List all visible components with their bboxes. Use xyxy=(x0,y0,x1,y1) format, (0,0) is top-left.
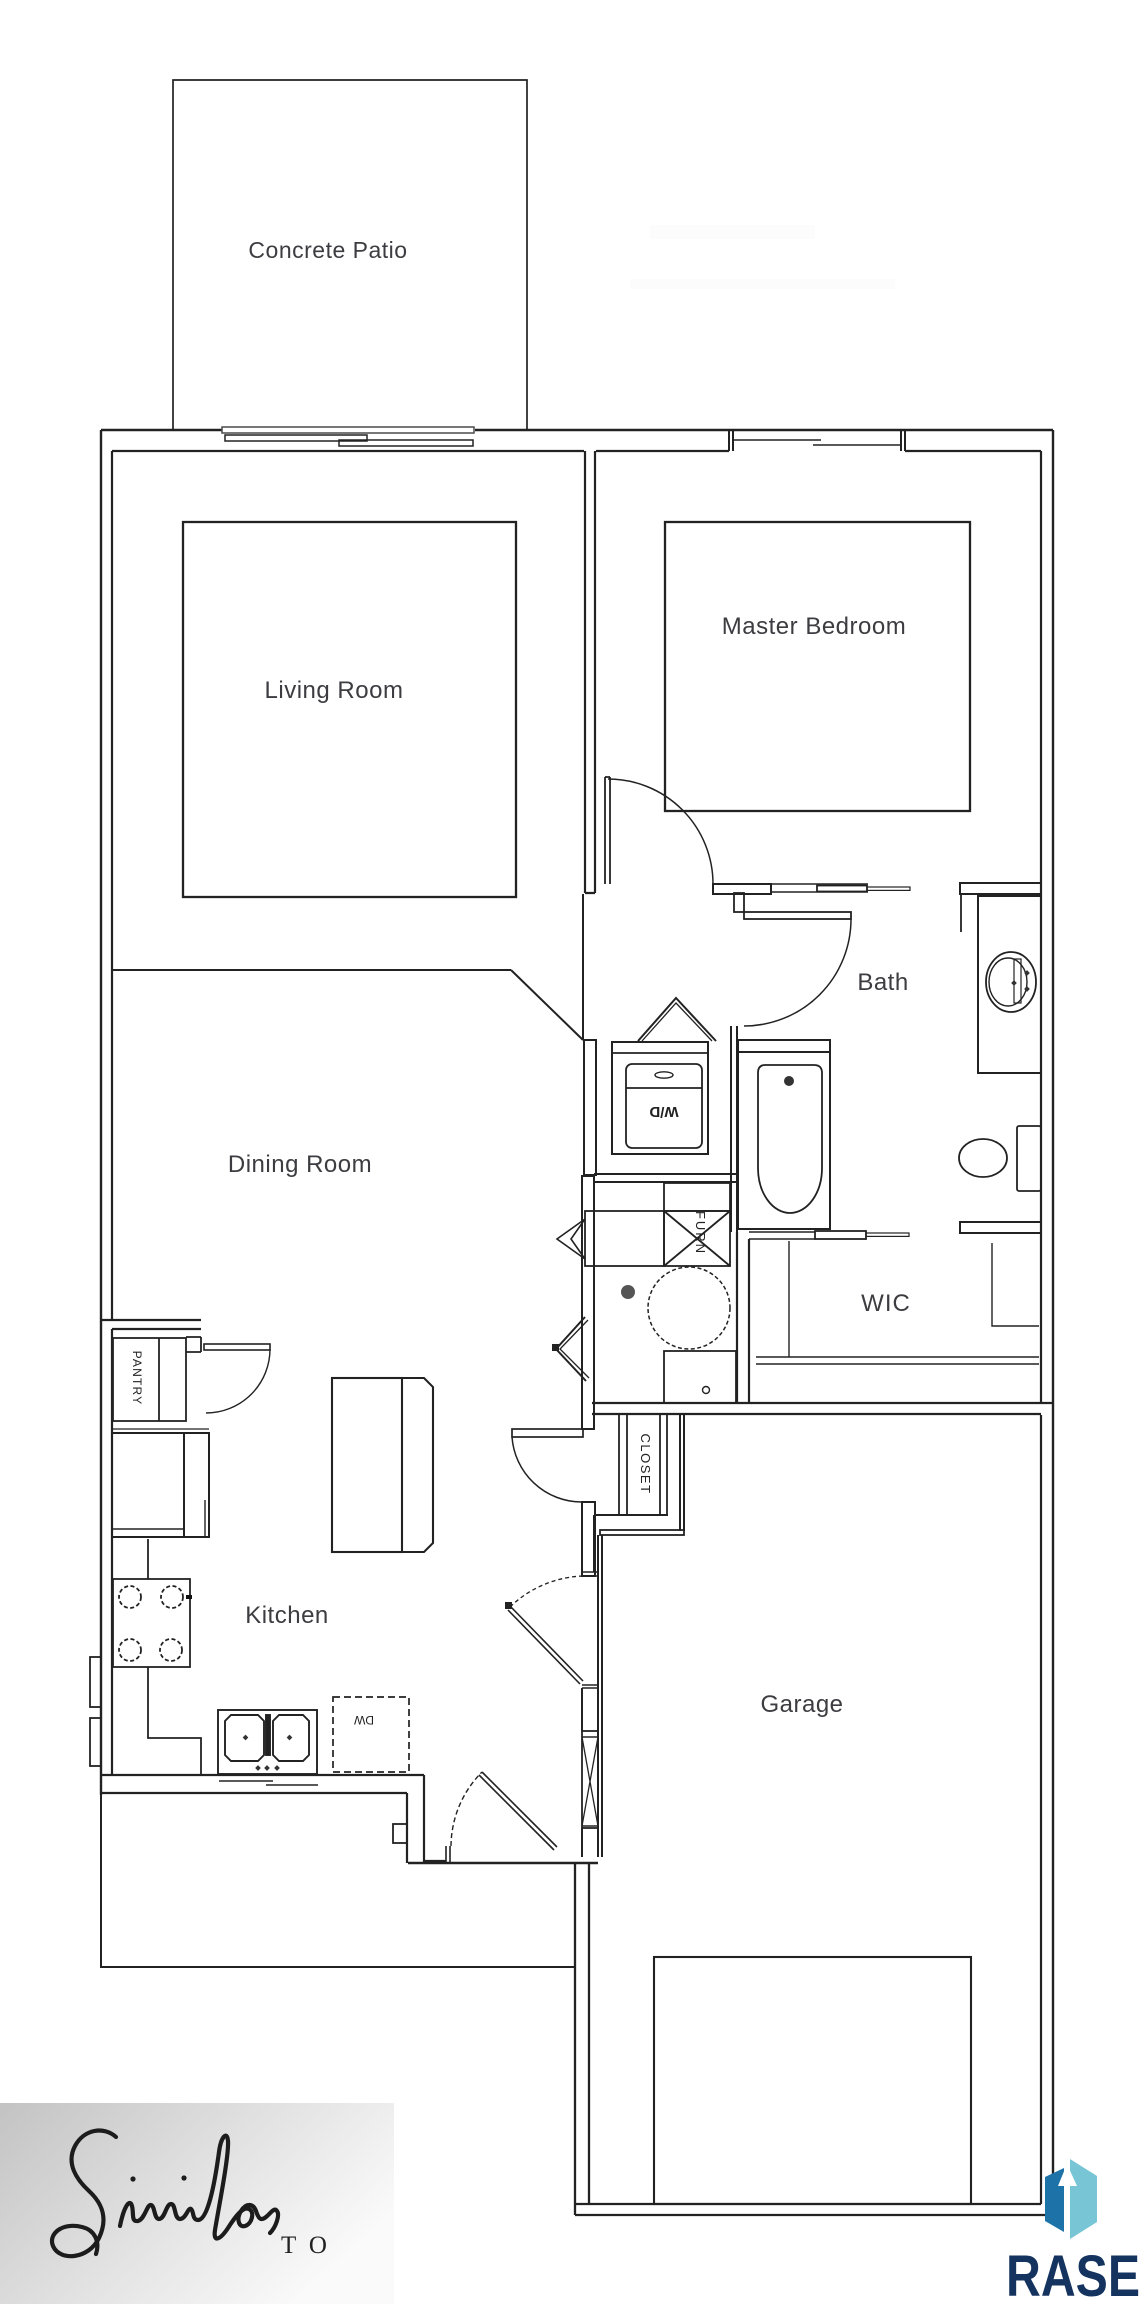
svg-text:FURN: FURN xyxy=(693,1211,708,1255)
svg-text:Master Bedroom: Master Bedroom xyxy=(722,613,906,640)
svg-text:RASE: RASE xyxy=(1006,2244,1140,2304)
svg-text:PANTRY: PANTRY xyxy=(130,1351,144,1406)
svg-text:TO: TO xyxy=(281,2232,340,2259)
svg-text:Living Room: Living Room xyxy=(265,677,404,704)
svg-text:DW: DW xyxy=(353,1713,374,1727)
svg-text:Concrete Patio: Concrete Patio xyxy=(248,237,407,263)
svg-text:Dining Room: Dining Room xyxy=(228,1151,372,1178)
svg-text:Kitchen: Kitchen xyxy=(245,1602,329,1629)
svg-text:W/D: W/D xyxy=(649,1103,678,1120)
svg-text:Garage: Garage xyxy=(760,1691,843,1718)
svg-text:WIC: WIC xyxy=(861,1290,911,1317)
svg-text:CLOSET: CLOSET xyxy=(638,1433,653,1494)
svg-text:Bath: Bath xyxy=(857,969,908,996)
